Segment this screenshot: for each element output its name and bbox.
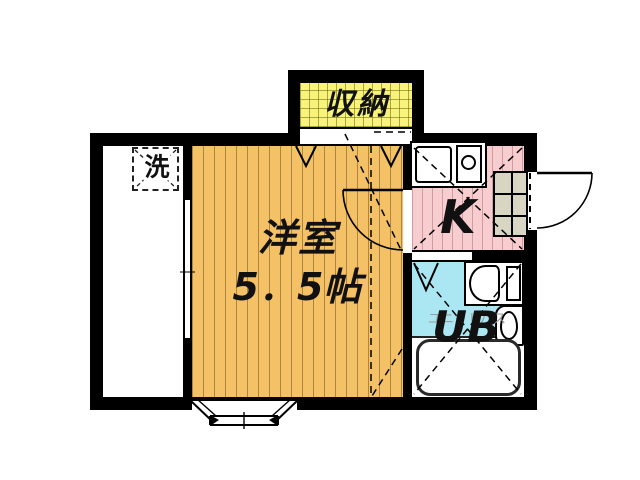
shoe-cabinet xyxy=(493,171,528,237)
western-room-label: 洋室 xyxy=(258,219,338,257)
wall xyxy=(297,397,537,410)
wall xyxy=(403,253,412,397)
stove-burner-icon xyxy=(461,155,476,170)
wall xyxy=(90,133,300,146)
cabinet-divider xyxy=(511,173,513,235)
sliding-door xyxy=(183,200,192,338)
kitchen-label: K xyxy=(440,194,476,240)
toilet-tank xyxy=(506,266,521,301)
bay-window xyxy=(191,399,297,429)
closet-opening xyxy=(300,127,412,146)
floor-plan: 収納 洗 洋室 5．5帖 K ユニットバス UB xyxy=(0,0,640,480)
western-room-size-label: 5．5帖 xyxy=(233,268,362,306)
wall xyxy=(90,133,103,410)
entrance-door-swing xyxy=(530,173,592,229)
toilet xyxy=(464,261,524,306)
wall xyxy=(192,397,297,401)
wall xyxy=(524,133,537,172)
washer-label: 洗 xyxy=(143,154,170,181)
cabinet-shelf xyxy=(495,193,526,195)
storage-label: 収納 xyxy=(324,90,390,120)
room-door-opening xyxy=(403,190,412,253)
wall xyxy=(524,230,537,410)
wall xyxy=(90,397,192,410)
wall xyxy=(183,146,192,200)
toilet-bowl xyxy=(469,265,500,302)
cabinet-shelf xyxy=(495,215,526,217)
bath-door-opening xyxy=(412,250,472,262)
kitchen-sink xyxy=(415,146,452,183)
wall xyxy=(288,70,424,83)
wall xyxy=(183,338,192,397)
wall xyxy=(412,70,424,146)
unit-bath-label: UB xyxy=(432,307,500,350)
